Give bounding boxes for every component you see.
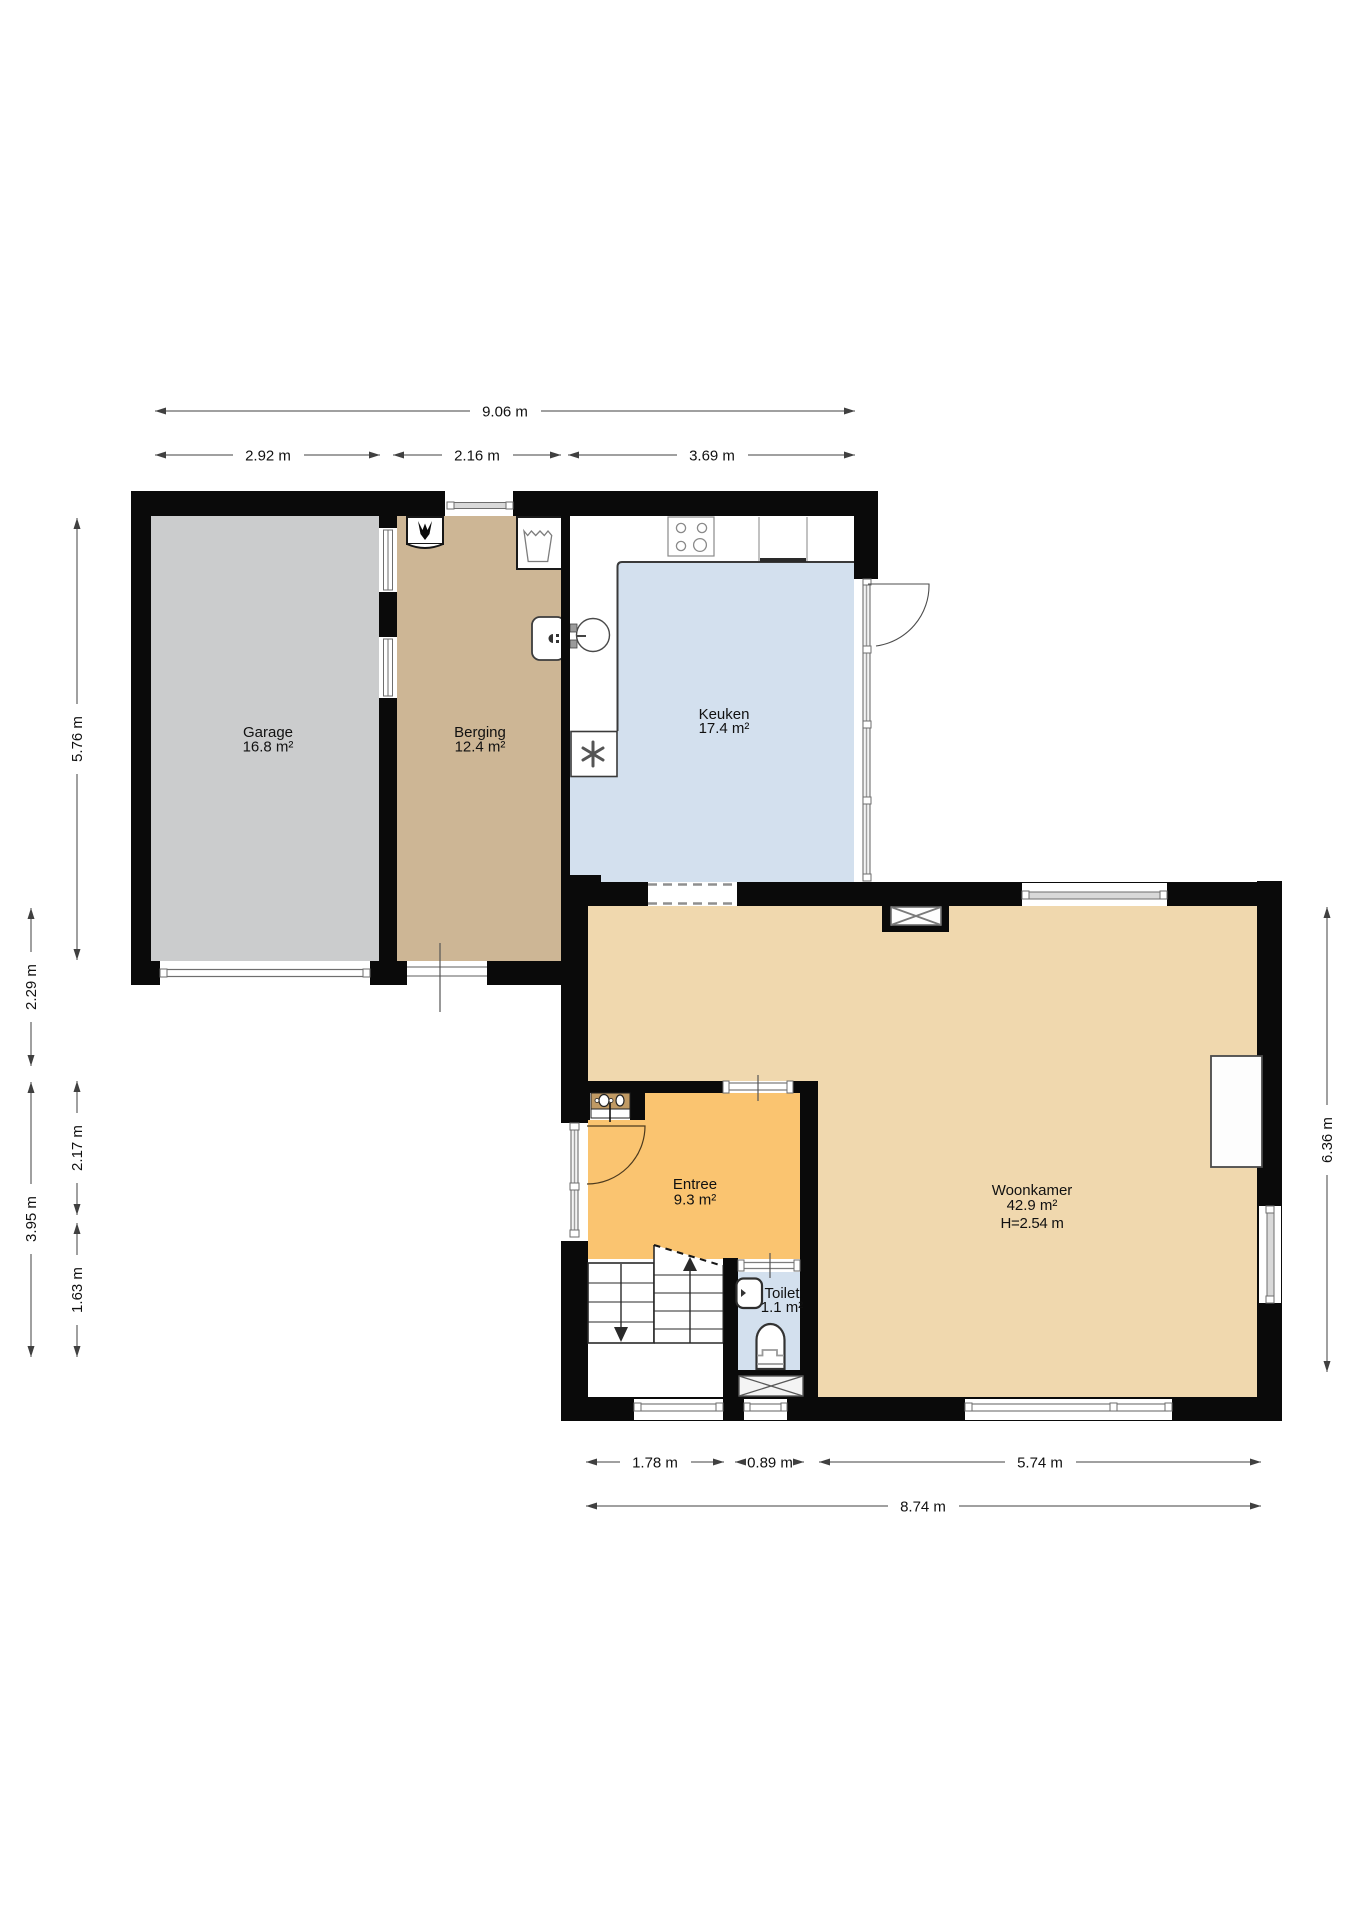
- svg-text:2.17 m: 2.17 m: [69, 1125, 86, 1171]
- svg-text:1.78 m: 1.78 m: [632, 1455, 678, 1472]
- svg-text:5.74 m: 5.74 m: [1017, 1455, 1063, 1472]
- svg-text:17.4 m²: 17.4 m²: [699, 720, 750, 737]
- svg-text:12.4 m²: 12.4 m²: [455, 739, 506, 756]
- svg-text:16.8 m²: 16.8 m²: [243, 739, 294, 756]
- svg-text:Entree: Entree: [673, 1176, 717, 1193]
- svg-text:8.74 m: 8.74 m: [900, 1499, 946, 1516]
- svg-text:2.29 m: 2.29 m: [23, 964, 40, 1010]
- svg-text:H=2.54 m: H=2.54 m: [1000, 1215, 1063, 1232]
- svg-text:3.95 m: 3.95 m: [23, 1196, 40, 1242]
- svg-text:0.89 m: 0.89 m: [747, 1455, 793, 1472]
- svg-text:2.92 m: 2.92 m: [245, 448, 291, 465]
- svg-text:1.63 m: 1.63 m: [69, 1267, 86, 1313]
- svg-text:3.69 m: 3.69 m: [689, 448, 735, 465]
- svg-text:9.3 m²: 9.3 m²: [674, 1192, 717, 1209]
- svg-text:5.76 m: 5.76 m: [69, 716, 86, 762]
- svg-text:42.9 m²: 42.9 m²: [1007, 1197, 1058, 1214]
- svg-text:6.36 m: 6.36 m: [1319, 1117, 1336, 1163]
- svg-text:1.1 m²: 1.1 m²: [761, 1299, 804, 1316]
- svg-text:2.16 m: 2.16 m: [454, 448, 500, 465]
- svg-text:9.06 m: 9.06 m: [482, 404, 528, 421]
